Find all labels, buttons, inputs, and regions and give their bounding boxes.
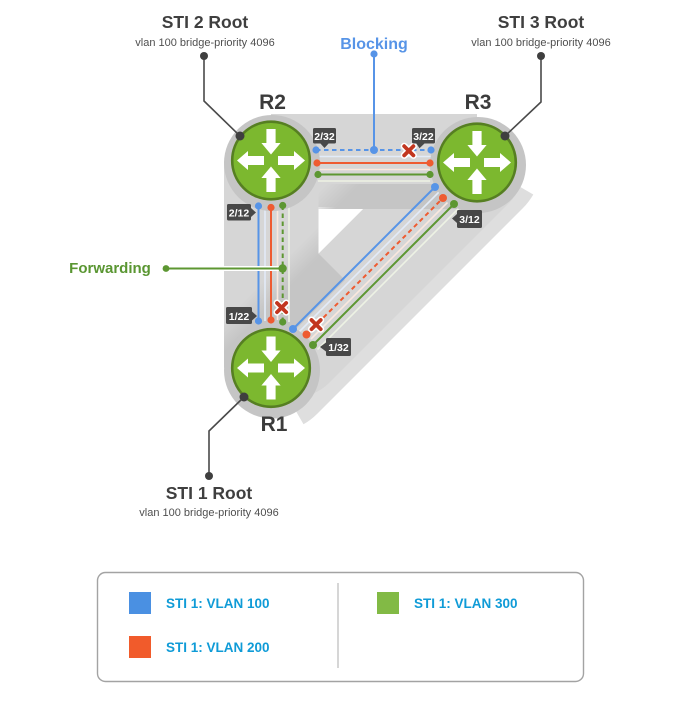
svg-text:vlan 100 bridge-priority 4096: vlan 100 bridge-priority 4096 xyxy=(471,37,610,49)
svg-text:R1: R1 xyxy=(261,413,288,436)
svg-text:1/22: 1/22 xyxy=(229,311,250,323)
svg-text:1/32: 1/32 xyxy=(328,342,349,354)
svg-text:STI 2 Root: STI 2 Root xyxy=(162,12,249,32)
svg-text:3/22: 3/22 xyxy=(413,131,434,143)
svg-text:Blocking: Blocking xyxy=(340,36,408,53)
svg-text:STI 1: VLAN 300: STI 1: VLAN 300 xyxy=(414,596,518,611)
svg-text:vlan 100 bridge-priority 4096: vlan 100 bridge-priority 4096 xyxy=(135,37,274,49)
svg-text:STI 1: VLAN 100: STI 1: VLAN 100 xyxy=(166,596,270,611)
svg-text:STI 3 Root: STI 3 Root xyxy=(498,12,585,32)
svg-text:R2: R2 xyxy=(259,91,286,114)
svg-text:2/12: 2/12 xyxy=(229,208,250,220)
svg-text:STI 1: VLAN 200: STI 1: VLAN 200 xyxy=(166,640,270,655)
svg-text:vlan 100 bridge-priority 4096: vlan 100 bridge-priority 4096 xyxy=(139,507,278,519)
svg-text:STI 1 Root: STI 1 Root xyxy=(166,483,253,503)
svg-text:R3: R3 xyxy=(465,91,492,114)
svg-text:Forwarding: Forwarding xyxy=(69,260,151,277)
svg-text:3/12: 3/12 xyxy=(459,214,480,226)
svg-text:2/32: 2/32 xyxy=(314,131,335,143)
